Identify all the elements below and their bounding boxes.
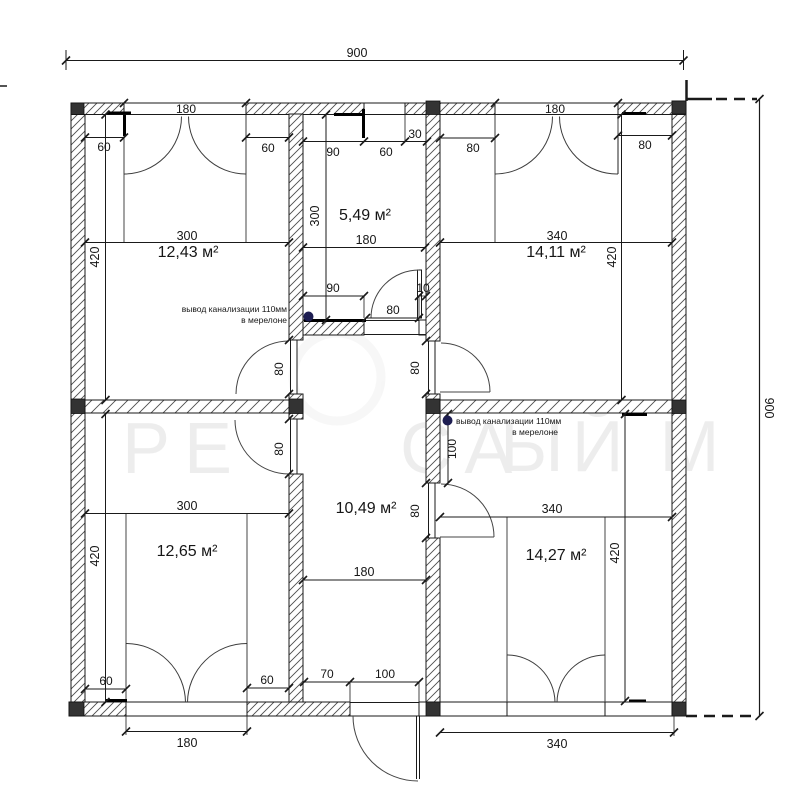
svg-text:300: 300 [177, 499, 198, 513]
svg-text:900: 900 [347, 46, 368, 60]
svg-text:60: 60 [261, 141, 275, 155]
svg-text:5,49 м²: 5,49 м² [339, 207, 392, 224]
svg-text:340: 340 [547, 737, 568, 751]
svg-text:180: 180 [177, 736, 198, 750]
svg-text:420: 420 [608, 543, 622, 564]
svg-text:30: 30 [408, 127, 422, 141]
svg-text:60: 60 [260, 673, 274, 687]
svg-text:80: 80 [466, 141, 480, 155]
svg-text:14,27 м²: 14,27 м² [526, 547, 587, 564]
svg-text:14,11 м²: 14,11 м² [526, 244, 586, 261]
svg-text:90: 90 [326, 281, 340, 295]
svg-text:180: 180 [545, 102, 565, 116]
svg-text:вывод канализации 110мм: вывод канализации 110мм [182, 304, 287, 314]
svg-text:10: 10 [416, 281, 430, 295]
svg-text:70: 70 [320, 667, 334, 681]
svg-text:100: 100 [445, 439, 459, 459]
svg-text:180: 180 [354, 565, 375, 579]
svg-text:300: 300 [177, 229, 198, 243]
svg-text:10,49 м²: 10,49 м² [336, 500, 397, 517]
svg-text:12,65 м²: 12,65 м² [157, 543, 218, 560]
svg-text:180: 180 [176, 102, 196, 116]
svg-text:12,43 м²: 12,43 м² [158, 244, 219, 261]
svg-text:420: 420 [605, 247, 619, 268]
svg-text:340: 340 [547, 229, 568, 243]
svg-text:80: 80 [638, 138, 652, 152]
svg-text:180: 180 [356, 233, 377, 247]
svg-text:80: 80 [408, 504, 422, 518]
svg-text:в мерелоне: в мерелоне [512, 427, 558, 437]
svg-text:80: 80 [272, 442, 286, 456]
svg-text:90: 90 [326, 145, 340, 159]
svg-text:РЕ: РЕ [122, 409, 246, 489]
svg-text:900: 900 [762, 398, 776, 419]
svg-text:60: 60 [97, 140, 111, 154]
svg-text:60: 60 [99, 674, 113, 688]
svg-text:в мерелоне: в мерелоне [241, 315, 287, 325]
svg-text:80: 80 [408, 361, 422, 375]
svg-text:100: 100 [375, 667, 395, 681]
svg-text:60: 60 [379, 145, 393, 159]
svg-text:80: 80 [386, 303, 400, 317]
svg-text:340: 340 [542, 502, 563, 516]
svg-text:80: 80 [272, 362, 286, 376]
svg-text:300: 300 [308, 206, 322, 227]
svg-text:420: 420 [88, 546, 102, 567]
svg-text:вывод канализации 110мм: вывод канализации 110мм [456, 416, 561, 426]
svg-text:420: 420 [88, 247, 102, 268]
